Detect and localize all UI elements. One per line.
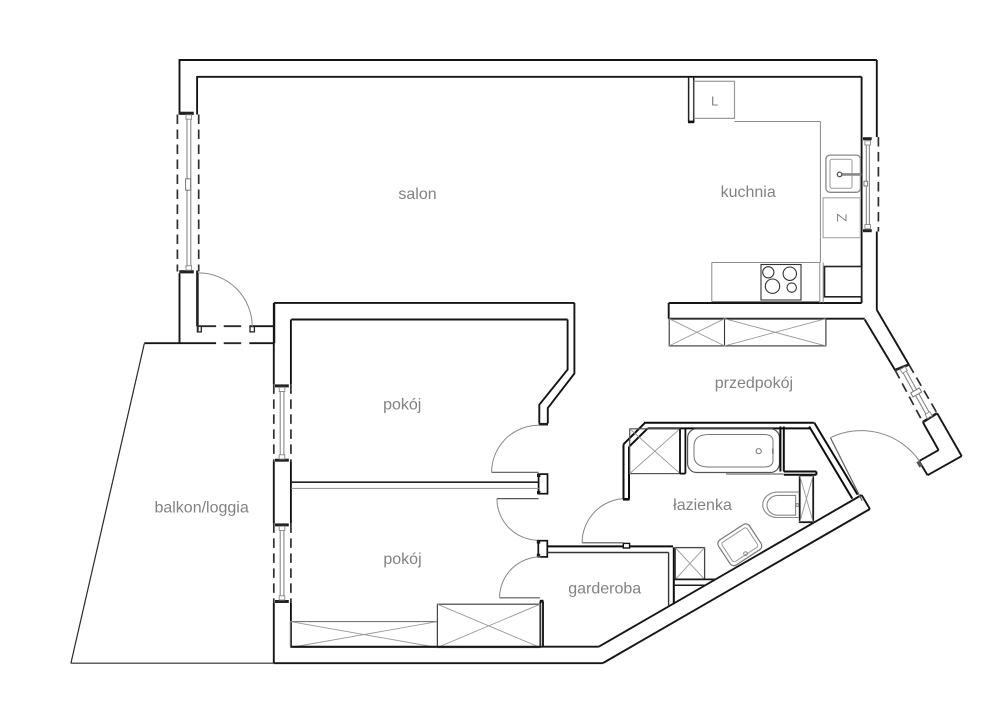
svg-text:pokój: pokój (383, 551, 421, 568)
svg-text:L: L (711, 94, 718, 109)
svg-text:przedpokój: przedpokój (715, 375, 793, 392)
svg-text:Z: Z (834, 213, 850, 222)
svg-text:garderoba: garderoba (568, 580, 641, 597)
svg-text:kuchnia: kuchnia (721, 184, 776, 201)
svg-text:łazienka: łazienka (673, 497, 732, 514)
svg-text:pokój: pokój (383, 396, 421, 413)
svg-text:salon: salon (398, 186, 436, 203)
svg-text:balkon/loggia: balkon/loggia (154, 500, 248, 517)
